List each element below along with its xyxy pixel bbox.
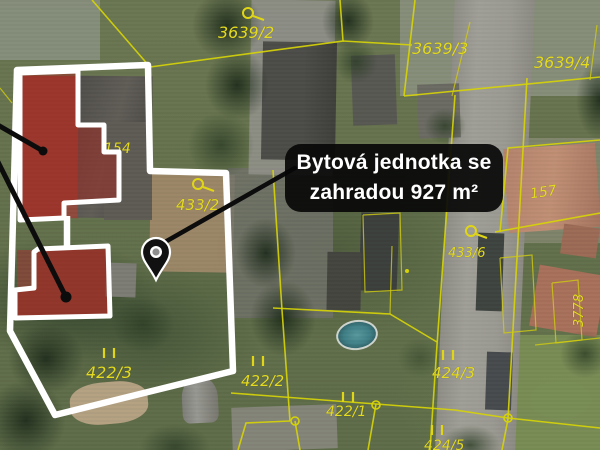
location-pin-icon <box>142 238 170 280</box>
parcel-label: 433/2 <box>176 196 219 214</box>
callout-dot <box>39 147 48 156</box>
parcel-label: 424/5 <box>424 438 464 450</box>
parcel-label: 3639/4 <box>534 53 590 72</box>
listing-map-screenshot: 3639/2 3639/3 3639/4 154 433/2 433/6 157… <box>0 0 600 450</box>
listing-callout-label: Bytová jednotka se zahradou 927 m² <box>285 144 503 212</box>
parcel-label: 3639/3 <box>412 39 468 58</box>
callout-line-2: zahradou 927 m² <box>285 178 503 208</box>
parcel-label: 157 <box>529 183 558 203</box>
boundary-node-circles <box>291 269 512 425</box>
parcel-label: 433/6 <box>448 246 485 261</box>
highlighted-unit-building-lower <box>15 246 110 318</box>
parcel-label: 422/1 <box>326 404 366 420</box>
callout-line-1: Bytová jednotka se <box>285 148 503 178</box>
parcel-label: 424/3 <box>432 364 475 382</box>
callout-dot <box>61 292 72 303</box>
parcel-label: 3778 <box>572 294 587 327</box>
cadastral-annotation-layer: 3639/2 3639/3 3639/4 154 433/2 433/6 157… <box>0 0 600 450</box>
parcel-label: 422/2 <box>241 372 284 390</box>
parcel-label: 3639/2 <box>218 23 274 42</box>
parcel-label: 422/3 <box>86 363 132 382</box>
